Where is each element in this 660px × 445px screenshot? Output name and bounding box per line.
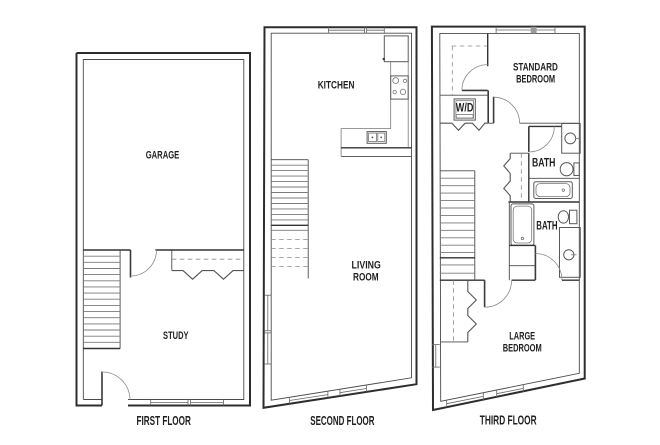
svg-text:W/D: W/D [456, 103, 474, 115]
svg-text:BEDROOM: BEDROOM [516, 73, 555, 85]
svg-text:BEDROOM: BEDROOM [503, 343, 542, 355]
svg-text:BATH: BATH [536, 218, 557, 232]
svg-text:SECOND FLOOR: SECOND FLOOR [310, 414, 374, 428]
svg-text:LIVING: LIVING [352, 259, 381, 271]
svg-text:GARAGE: GARAGE [146, 149, 180, 161]
svg-text:BATH: BATH [532, 156, 556, 170]
svg-text:FIRST FLOOR: FIRST FLOOR [137, 414, 191, 428]
svg-text:THIRD FLOOR: THIRD FLOOR [480, 413, 537, 427]
svg-text:KITCHEN: KITCHEN [318, 80, 355, 92]
svg-text:ROOM: ROOM [353, 271, 379, 283]
svg-text:LARGE: LARGE [509, 330, 535, 342]
svg-text:STANDARD: STANDARD [513, 61, 558, 73]
svg-text:STUDY: STUDY [163, 330, 189, 342]
